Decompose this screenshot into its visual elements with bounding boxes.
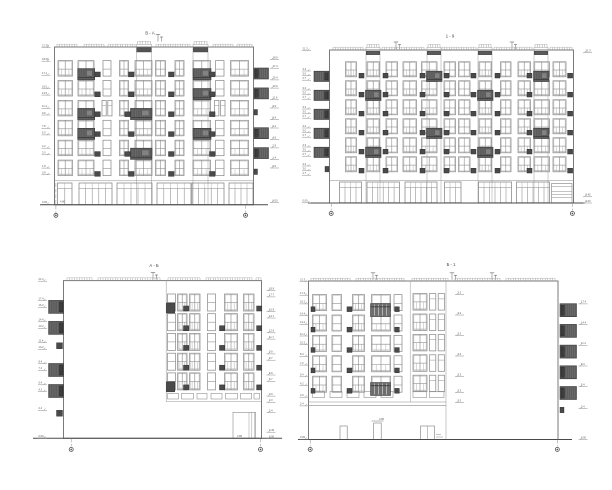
- svg-text:14.4: 14.4: [300, 311, 306, 315]
- svg-text:4.80: 4.80: [237, 434, 243, 438]
- svg-text:0.00: 0.00: [581, 435, 587, 439]
- svg-text:В - А: В - А: [145, 31, 155, 36]
- svg-text:4.2: 4.2: [300, 381, 304, 385]
- svg-text:2.7: 2.7: [303, 76, 307, 80]
- svg-text:13.9: 13.9: [273, 84, 279, 88]
- svg-text:9.9: 9.9: [269, 350, 273, 354]
- svg-text:5.7: 5.7: [269, 377, 273, 381]
- svg-text:11.7: 11.7: [269, 335, 274, 339]
- svg-text:21.3: 21.3: [303, 46, 309, 50]
- svg-text:3.0: 3.0: [303, 110, 307, 114]
- svg-text:8.4: 8.4: [39, 360, 43, 364]
- svg-text:2.4: 2.4: [269, 408, 273, 412]
- svg-text:3.3: 3.3: [303, 86, 307, 90]
- svg-text:3.0: 3.0: [303, 72, 307, 76]
- svg-text:0.00: 0.00: [273, 198, 279, 202]
- svg-text:9.9: 9.9: [273, 104, 277, 108]
- svg-text:6.3: 6.3: [42, 131, 46, 135]
- svg-text:2.9: 2.9: [273, 144, 277, 148]
- svg-text:1.4: 1.4: [273, 155, 277, 159]
- svg-text:9.9: 9.9: [42, 111, 46, 115]
- svg-text:15.9: 15.9: [269, 308, 275, 312]
- svg-text:3.3: 3.3: [42, 151, 46, 155]
- svg-text:2.7: 2.7: [303, 95, 307, 99]
- svg-text:2.7: 2.7: [303, 114, 307, 118]
- svg-text:1 - 9: 1 - 9: [446, 34, 455, 39]
- svg-text:13.2: 13.2: [39, 324, 45, 328]
- svg-text:2.7: 2.7: [303, 133, 307, 137]
- svg-text:18.9: 18.9: [273, 55, 279, 59]
- svg-text:14.7: 14.7: [269, 314, 275, 318]
- svg-text:21.3: 21.3: [39, 277, 45, 281]
- svg-text:3.3: 3.3: [303, 105, 307, 109]
- svg-text:2.4: 2.4: [300, 402, 304, 406]
- svg-text:11.4: 11.4: [42, 104, 47, 108]
- svg-text:3.3: 3.3: [458, 398, 462, 402]
- svg-text:0.00: 0.00: [586, 199, 592, 203]
- svg-text:3.9: 3.9: [269, 392, 273, 396]
- svg-text:21.30: 21.30: [42, 43, 49, 47]
- svg-text:17.7: 17.7: [269, 293, 275, 297]
- svg-text:0.00: 0.00: [39, 434, 45, 438]
- svg-text:4.2: 4.2: [42, 144, 46, 148]
- svg-text:10.2: 10.2: [300, 341, 306, 345]
- svg-text:3.3: 3.3: [303, 162, 307, 166]
- svg-text:17.4: 17.4: [300, 291, 306, 295]
- svg-text:3.3: 3.3: [458, 290, 462, 294]
- svg-text:Б - 1: Б - 1: [447, 262, 456, 267]
- svg-text:7.2: 7.2: [300, 361, 304, 365]
- svg-text:2.4: 2.4: [581, 404, 585, 408]
- svg-text:11.4: 11.4: [581, 341, 586, 345]
- svg-text:13.2: 13.2: [300, 320, 306, 324]
- svg-text:0.00: 0.00: [300, 435, 306, 439]
- svg-text:0.00: 0.00: [42, 200, 48, 204]
- svg-text:4.80: 4.80: [60, 200, 66, 204]
- svg-text:5.4: 5.4: [39, 381, 43, 385]
- svg-text:13.5: 13.5: [42, 91, 48, 95]
- svg-text:3.3: 3.3: [269, 398, 273, 402]
- svg-text:11.9: 11.9: [273, 96, 278, 100]
- svg-text:0.45: 0.45: [269, 428, 275, 432]
- svg-text:0.00: 0.00: [303, 199, 309, 203]
- svg-text:10.2: 10.2: [39, 345, 45, 349]
- svg-text:14.4: 14.4: [39, 317, 45, 321]
- svg-text:0.00: 0.00: [269, 434, 275, 438]
- svg-text:11.4: 11.4: [300, 332, 305, 336]
- svg-text:8.4: 8.4: [273, 116, 277, 120]
- svg-text:4.80: 4.80: [379, 417, 385, 421]
- svg-text:3.3: 3.3: [303, 143, 307, 147]
- svg-text:1.8: 1.8: [42, 164, 46, 168]
- svg-text:3.3: 3.3: [303, 124, 307, 128]
- svg-text:14.4: 14.4: [581, 320, 587, 324]
- svg-text:5.4: 5.4: [581, 383, 585, 387]
- svg-text:3.3: 3.3: [458, 331, 462, 335]
- svg-text:8.7: 8.7: [269, 356, 273, 360]
- svg-text:4.2: 4.2: [39, 387, 43, 391]
- svg-text:3.3: 3.3: [458, 372, 462, 376]
- svg-text:0.6: 0.6: [273, 164, 277, 168]
- svg-text:3.3: 3.3: [303, 67, 307, 71]
- svg-text:15.4: 15.4: [273, 76, 279, 80]
- svg-text:16.2: 16.2: [300, 300, 306, 304]
- svg-text:18.9: 18.9: [269, 286, 275, 290]
- svg-text:8.4: 8.4: [300, 352, 304, 356]
- svg-text:6.4: 6.4: [273, 124, 277, 128]
- svg-text:3.3: 3.3: [458, 352, 462, 356]
- svg-text:7.2: 7.2: [39, 366, 43, 370]
- svg-text:3.0: 3.0: [303, 148, 307, 152]
- svg-text:7.8: 7.8: [42, 124, 46, 128]
- svg-text:8.4: 8.4: [581, 362, 585, 366]
- svg-text:3.0: 3.0: [300, 393, 304, 397]
- svg-text:6.9: 6.9: [269, 371, 273, 375]
- svg-text:17.4: 17.4: [39, 296, 45, 300]
- svg-text:17.4: 17.4: [581, 300, 587, 304]
- svg-text:0.9: 0.9: [42, 171, 46, 175]
- svg-text:11.4: 11.4: [39, 339, 44, 343]
- svg-text:2.7: 2.7: [303, 152, 307, 156]
- svg-text:21.3: 21.3: [300, 277, 306, 281]
- svg-text:17.4: 17.4: [273, 64, 279, 68]
- svg-text:3.3: 3.3: [458, 388, 462, 392]
- svg-text:2.7: 2.7: [303, 171, 307, 175]
- svg-text:3.0: 3.0: [303, 167, 307, 171]
- svg-text:5.4: 5.4: [300, 373, 304, 377]
- svg-text:12.9: 12.9: [269, 329, 275, 333]
- svg-text:21.3: 21.3: [586, 48, 592, 52]
- svg-text:3.3: 3.3: [458, 311, 462, 315]
- svg-text:А - Б: А - Б: [149, 263, 159, 268]
- svg-text:17.1: 17.1: [42, 71, 48, 75]
- svg-text:15.0: 15.0: [42, 84, 48, 88]
- svg-text:4.9: 4.9: [273, 135, 277, 139]
- svg-text:18.60: 18.60: [42, 57, 49, 61]
- svg-text:2.4: 2.4: [39, 406, 43, 410]
- svg-text:3.0: 3.0: [303, 91, 307, 95]
- svg-text:3.0: 3.0: [303, 129, 307, 133]
- svg-text:16.2: 16.2: [39, 303, 45, 307]
- svg-text:0.45: 0.45: [586, 192, 592, 196]
